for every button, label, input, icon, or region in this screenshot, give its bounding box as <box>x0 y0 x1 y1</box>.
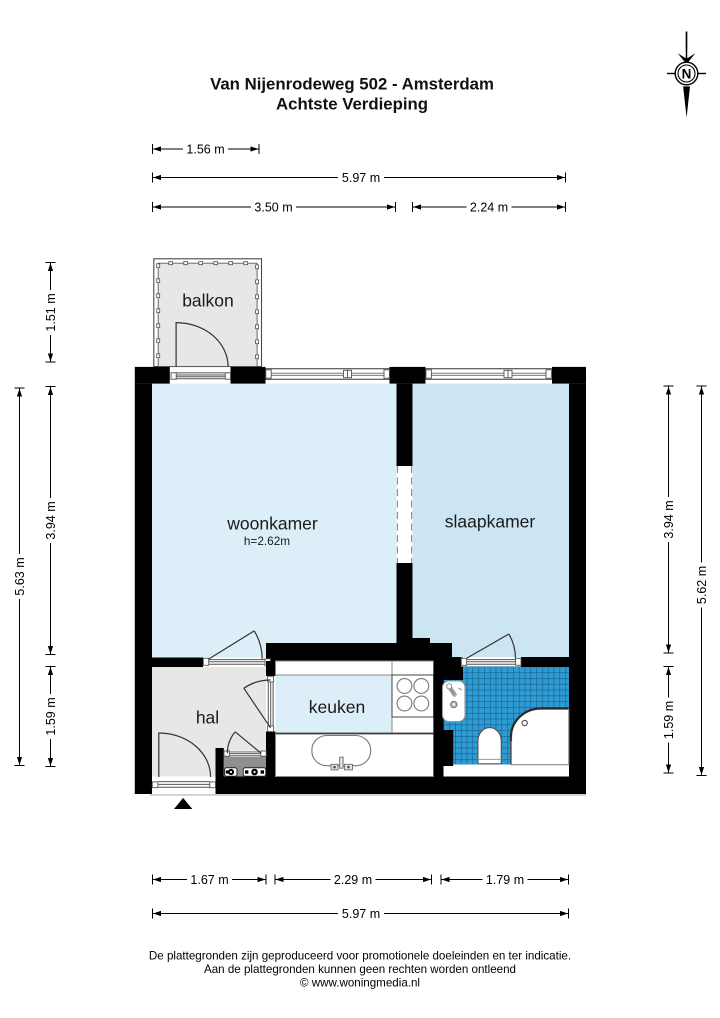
svg-text:Van Nijenrodeweg 502 - Amsterd: Van Nijenrodeweg 502 - Amsterdam <box>210 75 494 94</box>
svg-text:1.56 m: 1.56 m <box>186 143 224 157</box>
svg-text:Achtste Verdieping: Achtste Verdieping <box>276 95 428 114</box>
svg-text:5.97 m: 5.97 m <box>342 907 380 921</box>
svg-text:h=2.62m: h=2.62m <box>244 534 290 548</box>
svg-text:N: N <box>682 67 692 82</box>
svg-text:1.51 m: 1.51 m <box>44 293 58 331</box>
svg-text:1.59 m: 1.59 m <box>662 701 676 739</box>
svg-text:1.59 m: 1.59 m <box>44 697 58 735</box>
svg-text:2.29 m: 2.29 m <box>334 873 372 887</box>
svg-text:5.97 m: 5.97 m <box>342 171 380 185</box>
svg-text:balkon: balkon <box>182 291 234 311</box>
svg-text:slaapkamer: slaapkamer <box>445 512 536 532</box>
svg-text:5.63 m: 5.63 m <box>13 557 27 595</box>
svg-text:hal: hal <box>196 708 219 728</box>
svg-text:1.79 m: 1.79 m <box>486 873 524 887</box>
svg-text:3.50 m: 3.50 m <box>254 201 292 215</box>
svg-text:5.62 m: 5.62 m <box>695 566 709 604</box>
svg-text:Aan de plattegronden kunnen ge: Aan de plattegronden kunnen geen rechten… <box>204 963 516 976</box>
svg-text:3.94 m: 3.94 m <box>662 500 676 538</box>
svg-text:© www.woningmedia.nl: © www.woningmedia.nl <box>300 977 420 990</box>
svg-text:keuken: keuken <box>309 697 365 717</box>
svg-text:1.67 m: 1.67 m <box>190 873 228 887</box>
svg-text:3.94 m: 3.94 m <box>44 501 58 539</box>
svg-text:De plattegronden zijn geproduc: De plattegronden zijn geproduceerd voor … <box>149 950 571 963</box>
svg-text:woonkamer: woonkamer <box>226 514 318 534</box>
svg-text:2.24 m: 2.24 m <box>470 201 508 215</box>
